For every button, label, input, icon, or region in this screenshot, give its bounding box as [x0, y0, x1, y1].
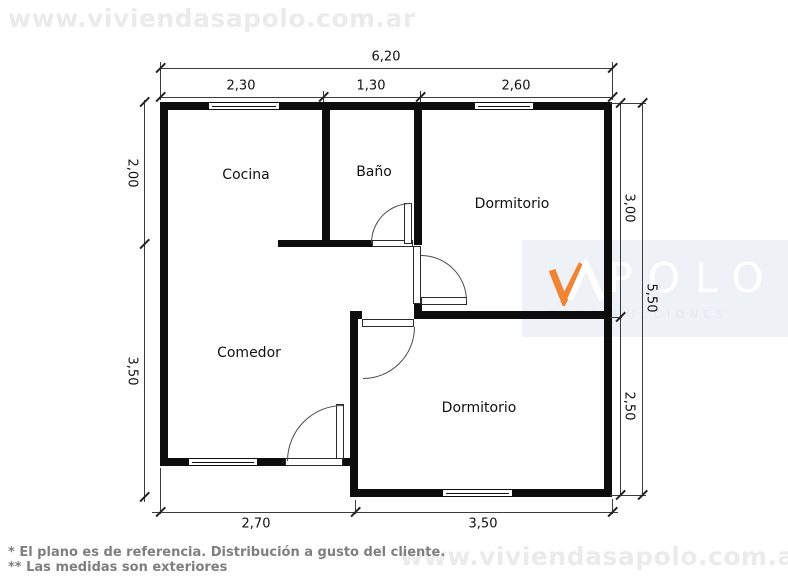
dimension-line-right-inner — [620, 102, 621, 496]
watermark-top: www.viviendasapolo.com.ar — [8, 4, 416, 33]
door-arc-dormitorio1 — [421, 255, 467, 301]
door-arc-dormitorio2 — [363, 327, 415, 379]
door-leaf-dormitorio2 — [362, 319, 414, 327]
dim-label-total-width: 6,20 — [372, 50, 401, 65]
window-dormitorio2 — [442, 489, 513, 497]
wall-dormitorio2-left — [350, 311, 358, 497]
extension-line — [160, 468, 161, 514]
dimension-line-bottom — [152, 512, 618, 513]
floor-plan-page: www.viviendasapolo.com.ar www.viviendasa… — [0, 0, 788, 584]
room-label-bano: Baño — [356, 164, 392, 180]
room-label-dormitorio2: Dormitorio — [442, 400, 517, 416]
dim-label-top-segment: 2,60 — [502, 79, 531, 94]
dimension-line-left — [144, 100, 145, 502]
wall-bano-dormitorio-divider — [414, 110, 422, 245]
dim-label-total-height: 5,50 — [644, 284, 659, 313]
dim-label-top-segment: 2,30 — [227, 79, 256, 94]
dimension-line-top-total — [160, 68, 612, 69]
wall-divider-dormitorios-segment — [414, 311, 612, 319]
dim-label-bottom-segment: 3,50 — [469, 517, 498, 532]
apolo-logo-mark-icon — [546, 256, 610, 306]
door-arc-entrance — [287, 405, 343, 461]
wall-bottom-comedor-segment — [160, 458, 188, 466]
footer-notes: * El plano es de referencia. Distribució… — [8, 545, 445, 575]
dimension-line-top-segments — [160, 97, 612, 98]
logo-brand-letters: POLO — [608, 254, 779, 302]
window-dormitorio1 — [474, 102, 534, 110]
dim-label-bottom-segment: 2,70 — [242, 517, 271, 532]
dim-label-right-segment: 3,00 — [622, 194, 637, 223]
door-panel-dormitorio1 — [413, 246, 421, 304]
room-label-cocina: Cocina — [222, 167, 269, 183]
wall-bottom-comedor-segment — [258, 458, 285, 466]
wall-divider-dormitorios-segment — [350, 311, 362, 319]
wall-cocina-bano-divider — [322, 110, 330, 247]
watermark-bottom: www.viviendasapolo.com.ar — [400, 542, 788, 571]
wall-right — [604, 102, 612, 497]
dim-label-left-segment: 2,00 — [125, 159, 140, 188]
window-cocina — [208, 102, 280, 110]
footer-note-1: * El plano es de referencia. Distribució… — [8, 545, 445, 560]
room-label-comedor: Comedor — [217, 345, 281, 361]
wall-left — [160, 102, 168, 466]
dim-label-left-segment: 3,50 — [125, 357, 140, 386]
footer-note-2: ** Las medidas son exteriores — [8, 560, 445, 575]
room-label-dormitorio1: Dormitorio — [475, 196, 550, 212]
dim-label-top-segment: 1,30 — [357, 79, 386, 94]
window-comedor — [188, 458, 258, 466]
door-arc-bano — [371, 203, 411, 243]
dim-label-right-segment: 2,50 — [622, 392, 637, 421]
